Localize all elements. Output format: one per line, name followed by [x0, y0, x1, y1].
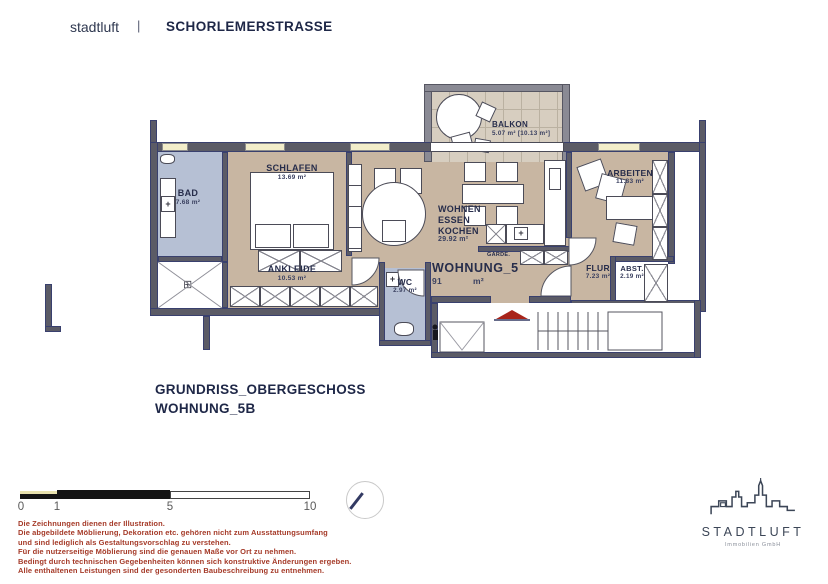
room-name: ARBEITEN — [596, 168, 664, 178]
stadtluft-logo: STADTLUFT Immobilien GmbH — [694, 478, 812, 548]
skyline-icon — [705, 478, 801, 518]
room-name: WC — [386, 277, 424, 287]
brand-text: stadtluft — [70, 19, 119, 35]
room-name: FLUR — [576, 263, 620, 273]
room-area: 2.19 m² — [615, 273, 649, 281]
scale-tick-label: 5 — [163, 501, 177, 513]
room-label-abst: ABST. 2.19 m² — [615, 264, 649, 281]
shower-cross — [158, 262, 222, 308]
disclaimer-line: Bedingt durch technischen Gegebenheiten … — [18, 557, 351, 566]
project-title: SCHORLEMERSTRASSE — [166, 19, 333, 34]
logo-name: STADTLUFT — [694, 525, 812, 539]
room-area: 10.53 m² — [242, 275, 342, 283]
header-separator: | — [137, 18, 140, 33]
room-name: ABST. — [615, 264, 649, 273]
room-area: 29.92 m² — [438, 236, 518, 244]
room-name: BALKON — [492, 120, 572, 130]
room-label-flur: FLUR 7.23 m² — [576, 263, 620, 281]
scale-tick-label: 10 — [300, 501, 320, 513]
apartment-label: WOHNUNG_5 91 m² — [432, 261, 542, 286]
drawing-title: GRUNDRISS_OBERGESCHOSS WOHNUNG_5B — [155, 380, 366, 418]
wall — [45, 284, 52, 332]
room-area: 11.83 m² — [596, 178, 664, 186]
room-area: 7.68 m² — [158, 199, 218, 207]
room-name: SCHLAFEN — [242, 163, 342, 174]
disclaimer-line: Für die nutzerseitige Möblierung sind di… — [18, 547, 351, 556]
stairs — [538, 312, 662, 350]
apartment-area-unit: m² — [473, 276, 484, 286]
room-name: GARDE. — [487, 252, 510, 258]
drawing-title-line1: GRUNDRISS_OBERGESCHOSS — [155, 380, 366, 399]
room-area: 7.23 m² — [576, 273, 620, 281]
room-label-schlafen: SCHLAFEN 13.69 m² — [242, 163, 342, 182]
scale-bar-segment — [170, 491, 310, 499]
room-area: 13.69 m² — [242, 174, 342, 182]
room-label-ankleide: ANKLEIDE 10.53 m² — [242, 264, 342, 283]
room-label-balkon: BALKON 5.07 m² [10.13 m²] — [492, 120, 572, 137]
scale-tick-label: 1 — [50, 501, 64, 513]
disclaimer-line: Die abgebildete Möblierung, Dekoration e… — [18, 528, 351, 537]
disclaimer-line: Die Zeichnungen dienen der Illustration. — [18, 519, 351, 528]
disclaimer-line: Alle enthaltenen Leistungen sind der ges… — [18, 566, 351, 575]
room-label-wc: WC 2.97 m² — [386, 277, 424, 295]
plan-linework — [145, 78, 710, 368]
floor-plan-page: stadtluft | SCHORLEMERSTRASSE — [0, 0, 828, 584]
apartment-area-value: 91 — [432, 276, 442, 286]
room-label-garde: GARDE. — [487, 252, 519, 259]
room-name: KOCHEN — [438, 226, 518, 237]
room-name: WOHNEN — [438, 204, 518, 215]
scale-tick-label: 0 — [14, 501, 28, 513]
room-label-arbeiten: ARBEITEN 11.83 m² — [596, 168, 664, 186]
north-indicator-icon — [346, 481, 384, 519]
wall — [45, 326, 61, 332]
disclaimer-line: und sind lediglich als Gestaltungsvorsch… — [18, 538, 351, 547]
room-area: 2.97 m² — [386, 287, 424, 295]
room-label-wohnen: WOHNEN ESSEN KOCHEN 29.92 m² — [438, 204, 518, 245]
disclaimer-text: Die Zeichnungen dienen der Illustration.… — [18, 519, 351, 575]
scale-bar-segment — [57, 490, 170, 499]
scale-bar-segment — [20, 491, 57, 499]
elevator — [433, 322, 485, 352]
room-name: ESSEN — [438, 215, 518, 226]
apartment-name: WOHNUNG_5 — [432, 261, 542, 276]
room-area: 5.07 m² [10.13 m²] — [492, 130, 572, 138]
room-label-bad: BAD 7.68 m² — [158, 188, 218, 207]
entrance-arrow-icon — [494, 310, 530, 320]
drawing-title-line2: WOHNUNG_5B — [155, 399, 366, 418]
logo-subtitle: Immobilien GmbH — [694, 542, 812, 548]
room-name: ANKLEIDE — [242, 264, 342, 275]
room-name: BAD — [158, 188, 218, 199]
